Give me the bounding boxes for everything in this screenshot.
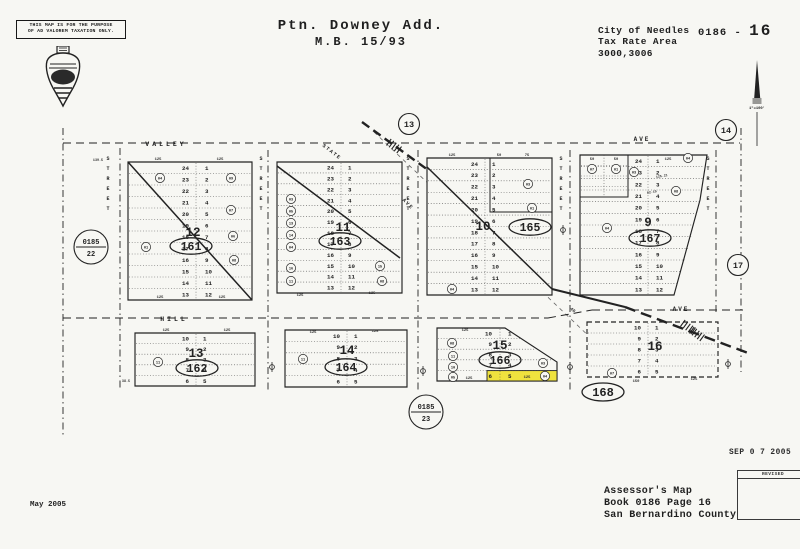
lot-number: 21 [327, 197, 334, 204]
street-name-vertical: T [559, 206, 562, 212]
lot-number: 12 [492, 286, 499, 293]
lot-number: 1 [348, 165, 352, 172]
street-name-vertical: S [559, 156, 562, 162]
lot-number: 23 [327, 175, 334, 182]
credit-line3: San Bernardino County [604, 510, 736, 522]
parcel-map-canvas: 2412322232142051961871781691510141113121… [0, 0, 800, 549]
lot-number: 7 [638, 358, 642, 365]
lot-number: 15 [471, 264, 478, 271]
lot-number: 2 [205, 176, 209, 183]
street-name-label: VALLEY [145, 141, 186, 148]
dimension-label: 125 [524, 376, 532, 380]
street-name-label: HILL [160, 316, 188, 323]
lot-number: 1 [655, 325, 659, 332]
lot-number: 6 [656, 216, 660, 223]
lot-number: 16 [182, 257, 189, 264]
block-apn-label: 168 [592, 386, 614, 400]
parcel-circle-number: 08 [232, 259, 236, 263]
parcel-circle-number: 07 [610, 372, 614, 376]
lot-number: 11 [205, 280, 212, 287]
parcel-circle-number: 01 [144, 246, 148, 250]
street-name-label: AVE [634, 136, 651, 143]
dimension-label: 150 [633, 380, 641, 384]
lot-number: 5 [203, 378, 207, 385]
parcel-circle-number: 01 [614, 168, 618, 172]
lot-number: 13 [635, 286, 642, 293]
section-number: 13 [404, 120, 414, 130]
old-block-number: 16 [647, 340, 662, 354]
lot-number: 1 [205, 165, 209, 172]
lot-number: 4 [348, 197, 352, 204]
lot-number: 2 [492, 172, 496, 179]
lot-number: 1 [203, 335, 207, 342]
dimension-label: 125 [297, 294, 305, 298]
street-name-vertical: S [706, 156, 709, 162]
street-name-vertical: E [259, 186, 262, 192]
date-stamp: SEP 0 7 2005 [729, 449, 791, 457]
lot-number: 16 [471, 252, 478, 259]
street-name-vertical: S [106, 156, 109, 162]
lot-number: 5 [348, 208, 352, 215]
lot-number: 24 [327, 165, 334, 172]
lot-number: 13 [471, 286, 478, 293]
lot-number: 4 [492, 195, 496, 202]
dimension-label: 125 [217, 158, 225, 162]
parcel-circle-number: 08 [674, 190, 678, 194]
dimension-label: 38.5 [122, 380, 130, 384]
parcel-circle-number: 15 [378, 265, 382, 269]
street-name-vertical: T [106, 166, 109, 172]
dimension-label: 50 [614, 158, 619, 162]
old-block-number: 13 [188, 347, 203, 361]
lot-number: 3 [492, 184, 496, 191]
lot-number: 9 [656, 251, 660, 258]
lot-number: 9 [638, 336, 642, 343]
lot-number: 12 [205, 291, 212, 298]
lot-number: 15 [635, 263, 642, 270]
lot-number: 6 [186, 378, 190, 385]
north-arrow-icon [754, 60, 760, 98]
lot-number: 24 [471, 161, 478, 168]
parcel-circle-number: 06 [231, 235, 235, 239]
dimension-label: 75 [525, 154, 530, 158]
parcel-circle-number: 03 [526, 183, 530, 187]
lot-number: 12 [656, 286, 663, 293]
block-apn-label: 165 [520, 222, 541, 235]
parcel-circle-number: 07 [229, 209, 233, 213]
lot-number: 5 [205, 211, 209, 218]
lot-number: 6 [489, 373, 493, 380]
lot-number: 22 [182, 188, 189, 195]
street-name-vertical: R [106, 176, 109, 182]
page-ref-book: 0185 [418, 404, 435, 412]
parcel-circle-number: 03 [289, 198, 293, 202]
block-apn-label: 164 [336, 362, 357, 375]
credit-line1: Assessor's Map [604, 486, 736, 498]
lot-number: 20 [182, 211, 189, 218]
lot-number: 21 [182, 199, 189, 206]
parcel-circle-number: 11 [301, 358, 305, 362]
lot-number: 19 [635, 216, 642, 223]
lot-number: 11 [492, 275, 499, 282]
lot-number: 9 [348, 252, 352, 259]
dimension-label: 125 [372, 330, 380, 334]
lot-number: 2 [508, 341, 512, 348]
lot-number: 11 [656, 275, 663, 282]
dimension-label: 139.5 [93, 159, 103, 163]
lot-number: 13 [327, 285, 334, 292]
street-name-vertical: E [106, 186, 109, 192]
lot-number: 3 [348, 186, 352, 193]
block-apn-label: 167 [640, 233, 661, 246]
dimension-label: 125 [665, 158, 673, 162]
revised-table-header: REVISED [738, 471, 800, 479]
lot-number: 19 [327, 219, 334, 226]
lot-number: 10 [333, 333, 340, 340]
lot-number: 6 [337, 378, 341, 385]
lot-number: 5 [354, 378, 358, 385]
lot-number: 24 [635, 158, 642, 165]
lot-number: 4 [205, 199, 209, 206]
street-name-vertical: S [406, 156, 409, 162]
dimension-label: 125 [219, 296, 227, 300]
revised-table: REVISED [737, 470, 800, 520]
street-name-vertical: E [559, 196, 562, 202]
street-name-vertical: T [406, 166, 409, 172]
old-block-number: 9 [644, 216, 652, 230]
lot-number: 10 [492, 264, 499, 271]
parcel-circle-number: 11 [156, 361, 160, 365]
parcel-circle-number: 03 [632, 171, 636, 175]
map-date-note: May 2005 [30, 501, 66, 509]
lot-number: 10 [348, 263, 355, 270]
parcel-circle-number: 16 [289, 267, 293, 271]
street-name-vertical: E [259, 196, 262, 202]
street-name-vertical: R [259, 176, 262, 182]
old-block-number: 15 [492, 339, 507, 353]
old-block-number: 14 [339, 344, 355, 358]
lot-number: 1 [354, 333, 358, 340]
street-name-vertical: E [406, 186, 409, 192]
lot-number: 10 [656, 263, 663, 270]
block-apn-label: 161 [181, 241, 202, 254]
lot-number: 12 [348, 285, 355, 292]
lot-number: 10 [485, 330, 492, 337]
street-name-vertical: T [706, 206, 709, 212]
dimension-label: 125 [310, 331, 318, 335]
parcel-circle-number: 08 [450, 342, 454, 346]
lot-number: 21 [471, 195, 478, 202]
parcel-circle-number: 13 [289, 222, 293, 226]
lot-number: 20 [635, 205, 642, 212]
lot-number: 6 [638, 369, 642, 376]
lot-number: 10 [634, 325, 641, 332]
dimension-label: 125 [369, 292, 377, 296]
parcel-circle-number: 07 [590, 168, 594, 172]
dimension-label: 125 [155, 158, 163, 162]
page-ref-page: 23 [422, 416, 430, 424]
lot-number: 6 [205, 222, 209, 229]
block-apn-label: 166 [490, 355, 511, 368]
old-block-number: 11 [335, 221, 350, 235]
old-block-number: 10 [475, 220, 490, 234]
lot-number: 11 [348, 274, 355, 281]
lot-number: 14 [471, 275, 478, 282]
lot-number: 20 [471, 206, 478, 213]
lot-number: 1 [508, 330, 512, 337]
lot-number: 10 [205, 268, 212, 275]
street-name-vertical: T [259, 206, 262, 212]
lot-number: 10 [182, 335, 189, 342]
street-name-vertical: R [706, 176, 709, 182]
street-name-vertical: R [559, 176, 562, 182]
dimension-label: 125 [466, 377, 474, 381]
lot-number: 22 [471, 184, 478, 191]
lot-number: 16 [635, 251, 642, 258]
assessor-map-page: THIS MAP IS FOR THE PURPOSE OF AD VALORE… [0, 0, 800, 549]
credit-line2: Book 0186 Page 16 [604, 498, 736, 510]
lot-number: 3 [205, 188, 209, 195]
assessor-credit: Assessor's Map Book 0186 Page 16 San Ber… [604, 486, 736, 522]
lot-number: 3 [656, 181, 660, 188]
street-name-vertical: R [406, 176, 409, 182]
street-name-vertical: T [559, 166, 562, 172]
lot-number: 13 [182, 291, 189, 298]
scale-label: 1"=100' [749, 106, 765, 111]
section-number: 14 [721, 126, 731, 136]
lot-number: 14 [635, 275, 642, 282]
lot-number: 15 [327, 263, 334, 270]
dimension-label: 125 [462, 329, 470, 333]
lot-number: 24 [182, 165, 189, 172]
dimension-label: 125 [157, 296, 165, 300]
dimension-label: 125 [224, 329, 232, 333]
street-name-vertical: E [706, 186, 709, 192]
lot-number: 8 [638, 347, 642, 354]
page-ref-page: 22 [87, 251, 95, 259]
street-name-vertical: S [259, 156, 262, 162]
parcel-circle-number: 01 [530, 207, 534, 211]
street-name-vertical: T [706, 166, 709, 172]
lot-number: 20 [327, 208, 334, 215]
lot-number: 4 [655, 358, 659, 365]
street-name-diagonal: STATE [321, 143, 342, 162]
lot-number: 23 [182, 176, 189, 183]
lot-number: 5 [508, 373, 512, 380]
block-apn-label: 163 [330, 236, 351, 249]
lot-number: 5 [655, 369, 659, 376]
lot-number: 17 [471, 241, 478, 248]
dimension-label: 50 [590, 158, 595, 162]
street-name-vertical: T [106, 206, 109, 212]
dimension-label: 125 [691, 378, 699, 382]
lot-number: 9 [205, 257, 209, 264]
lot-number: 2 [203, 346, 207, 353]
lot-number: 22 [327, 186, 334, 193]
dimension-label: 50 [497, 154, 502, 158]
parcel-circle-number: 09 [229, 177, 233, 181]
lot-number: 1 [656, 158, 660, 165]
street-name-vertical: T [259, 166, 262, 172]
lot-number: 23 [471, 172, 478, 179]
lot-number: 2 [348, 175, 352, 182]
old-block-number: 12 [185, 226, 200, 240]
street-name-label: AVE [673, 306, 690, 313]
street-name-vertical: E [106, 196, 109, 202]
parcel-circle-number: 08 [380, 280, 384, 284]
lot-number: 2 [354, 344, 358, 351]
lot-number: 8 [492, 241, 496, 248]
dimension-label: 125 [449, 154, 457, 158]
parcel-circle-number: 05 [289, 210, 293, 214]
lot-number: 4 [656, 193, 660, 200]
lot-number: 1 [492, 161, 496, 168]
lot-number: 16 [327, 252, 334, 259]
parcel-circle-number: 11 [451, 355, 455, 359]
parcel-circle-number: 10 [451, 366, 455, 370]
lot-number: 22 [635, 181, 642, 188]
parcel-circle-number: 05 [451, 376, 455, 380]
lot-number: 9 [492, 252, 496, 259]
lot-number: 21 [635, 193, 642, 200]
dimension-label: 125 [163, 329, 171, 333]
lot-number: 14 [327, 274, 334, 281]
section-number: 17 [733, 261, 743, 271]
block-apn-label: 162 [187, 363, 208, 376]
lot-number: 5 [656, 205, 660, 212]
street-name-vertical: E [706, 196, 709, 202]
lot-number: 15 [182, 268, 189, 275]
parcel-circle-number: 11 [289, 280, 293, 284]
parcel-circle-number: 03 [541, 362, 545, 366]
lot-number: 14 [182, 280, 189, 287]
lot-number: 6 [492, 218, 496, 225]
street-name-vertical: E [559, 186, 562, 192]
page-ref-book: 0185 [83, 239, 100, 247]
